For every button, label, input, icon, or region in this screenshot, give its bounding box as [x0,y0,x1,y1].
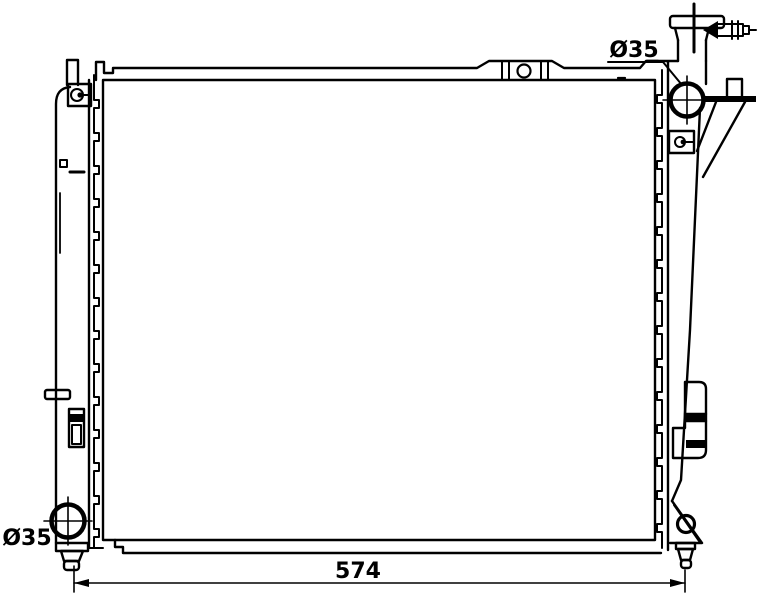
dim-width-label: 574 [335,559,381,584]
top-bracket-hole [518,65,531,78]
radiator-core [103,80,655,540]
bracket-tab [727,79,742,96]
left-tank [44,60,92,570]
right-tank-clip [669,131,694,153]
radiator-line-drawing: 574 Ø35 Ø35 [0,0,763,600]
left-tank-top-tab [67,60,78,85]
top-header [96,61,658,80]
dimension-574: 574 [74,559,685,592]
left-tank-outline [56,80,89,548]
bracket-gussets [697,102,745,177]
left-side-plate [94,75,99,548]
outlet-diameter-text: Ø35 [2,526,51,551]
right-upper-bracket [697,79,756,177]
dim-arrow-right-icon [670,579,685,587]
right-mount-peg [676,543,695,568]
bracket-bar [704,96,756,102]
left-drain-peg [56,543,88,570]
technical-drawing-canvas: 574 Ø35 Ø35 [0,0,763,600]
overflow-nipple [703,21,756,39]
left-tank-mark-square [60,160,67,167]
filler-neck-sides [678,40,706,61]
inlet-diameter-text: Ø35 [609,38,658,63]
left-tank-clip-pin [77,92,82,97]
left-tank-side-tab [45,390,70,399]
inlet-label-leader [608,62,682,85]
right-lower-bracket [673,382,706,458]
bottom-header [115,540,661,553]
right-bottom-bracket [670,501,702,543]
label-outlet-diameter: Ø35 [2,526,51,551]
right-side-plate [657,70,662,548]
dim-arrow-left-icon [74,579,89,587]
right-tank [647,4,756,568]
left-tank-bracket [69,409,84,447]
drawing-root: 574 Ø35 Ø35 [2,4,756,592]
